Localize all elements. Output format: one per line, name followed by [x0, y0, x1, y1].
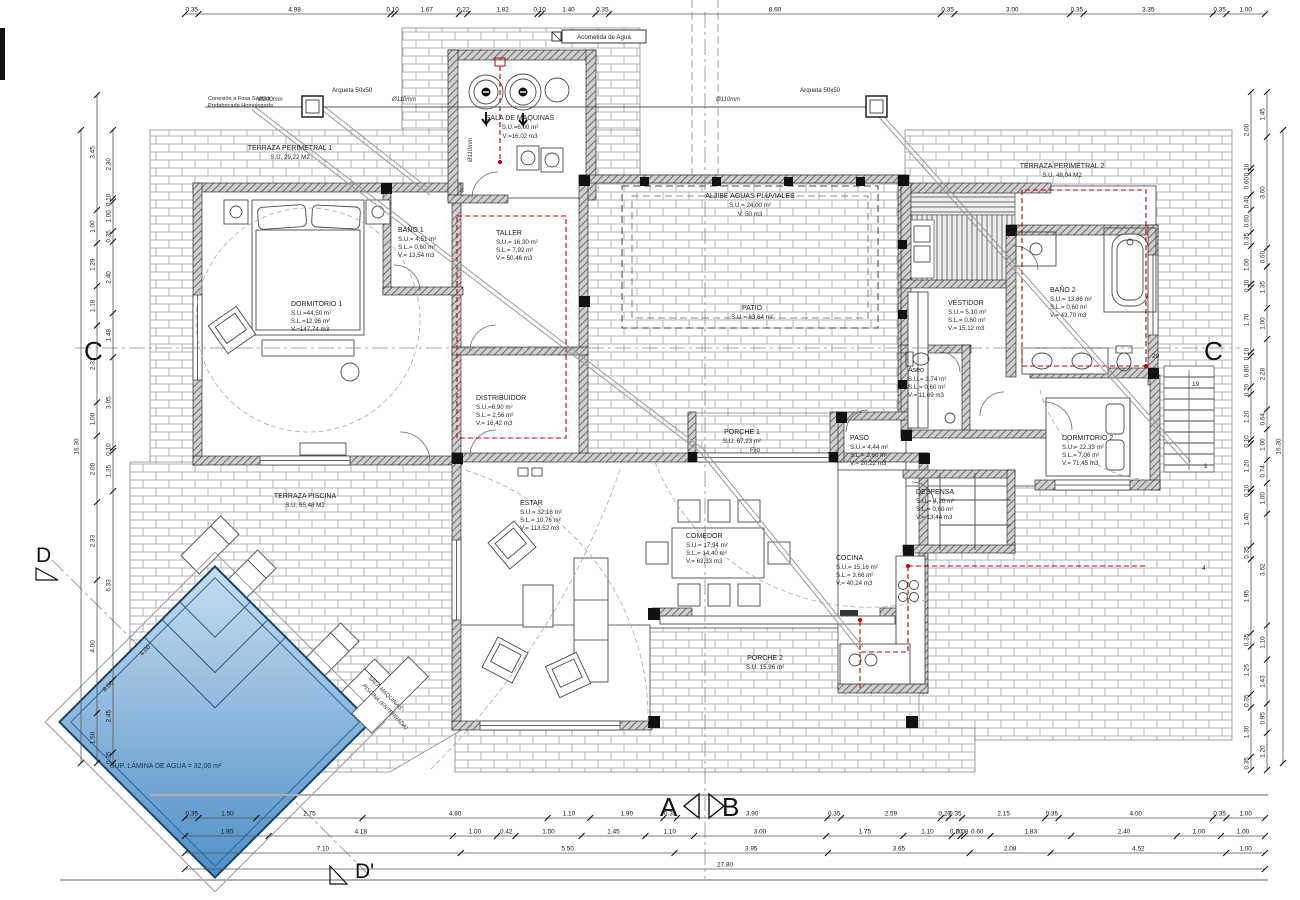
- svg-text:4.18: 4.18: [355, 829, 368, 836]
- svg-text:DORMITORIO 1: DORMITORIO 1: [291, 301, 342, 308]
- svg-text:S.U.= 16,30 m²: S.U.= 16,30 m²: [496, 239, 538, 246]
- svg-text:1.70: 1.70: [1244, 313, 1251, 326]
- svg-text:0.08: 0.08: [956, 829, 969, 836]
- arqueta-left-label: Arqueta 50x50: [332, 87, 373, 94]
- svg-text:S.U. 15,96 m²: S.U. 15,96 m²: [746, 664, 784, 671]
- svg-text:S.U.= 4,44 m²: S.U.= 4,44 m²: [850, 444, 888, 451]
- svg-text:COCINA: COCINA: [836, 555, 864, 562]
- svg-text:1.00: 1.00: [1260, 492, 1267, 505]
- section-d-prime: D': [355, 860, 374, 883]
- svg-text:1.90: 1.90: [621, 811, 634, 818]
- stair-number: 1: [1204, 463, 1208, 470]
- svg-text:S.U. 48,04 M2: S.U. 48,04 M2: [1042, 172, 1082, 179]
- svg-text:S.U.=6,00 m²: S.U.=6,00 m²: [502, 124, 539, 131]
- svg-text:S.U.= 63,64 m²: S.U.= 63,64 m²: [731, 314, 773, 321]
- dim-chain-right-inner: 2.000.100.600.400.600.351.000.101.700.10…: [1244, 89, 1255, 773]
- svg-text:V.=147,74 m3: V.=147,74 m3: [291, 326, 330, 333]
- svg-text:3.45: 3.45: [90, 146, 97, 159]
- svg-text:0.22: 0.22: [457, 7, 470, 14]
- arqueta-right-label: Arqueta 50x50: [800, 87, 841, 94]
- fijo-label: Fijo: [750, 447, 761, 454]
- svg-text:S.L.= 0,60 m²: S.L.= 0,60 m²: [398, 244, 435, 251]
- svg-text:BAÑO 2: BAÑO 2: [1050, 285, 1076, 294]
- dim-chain-right-outer: 16.30: [1276, 127, 1287, 766]
- svg-text:2.40: 2.40: [1118, 829, 1131, 836]
- svg-text:PORCHE 1: PORCHE 1: [724, 429, 760, 436]
- svg-text:0.74: 0.74: [1260, 465, 1267, 478]
- svg-text:0.10: 0.10: [1244, 279, 1251, 292]
- dim-chain-left-outer: 16.30: [74, 127, 85, 766]
- arqueta-right: [866, 96, 887, 117]
- svg-text:S.U.= 24,00 m²: S.U.= 24,00 m²: [729, 202, 771, 209]
- dim-chain-bottom-total: 27.80: [182, 862, 1268, 873]
- svg-text:0.35: 0.35: [949, 811, 962, 818]
- svg-text:1.10: 1.10: [1260, 636, 1267, 649]
- svg-text:1.30: 1.30: [1244, 725, 1251, 738]
- svg-text:PORCHE 2: PORCHE 2: [747, 655, 783, 662]
- svg-text:DESPENSA: DESPENSA: [916, 489, 954, 496]
- svg-text:0.10: 0.10: [386, 7, 399, 14]
- svg-text:1.82: 1.82: [496, 7, 509, 14]
- svg-text:S.U.=6,90 m²: S.U.=6,90 m²: [476, 404, 513, 411]
- svg-text:1.10: 1.10: [663, 829, 676, 836]
- svg-text:0.60: 0.60: [1244, 214, 1251, 227]
- svg-text:S.U.= 22,33 m²: S.U.= 22,33 m²: [1062, 444, 1104, 451]
- svg-text:1.00: 1.00: [1260, 438, 1267, 451]
- svg-text:PATIO: PATIO: [742, 305, 763, 312]
- svg-text:S.U. 65,48 M2: S.U. 65,48 M2: [285, 502, 325, 509]
- svg-text:V:=16,02 m3: V:=16,02 m3: [502, 133, 538, 140]
- floor-plan: SALA DE MAQUINASS.U.=6,00 m²V:=16,02 m3 …: [0, 0, 1300, 900]
- acometida-label: Acometida de Agua: [577, 34, 631, 41]
- svg-text:1.25: 1.25: [1244, 664, 1251, 677]
- svg-text:S.L.= 2,56 m²: S.L.= 2,56 m²: [476, 412, 513, 419]
- svg-text:4.00: 4.00: [1130, 811, 1143, 818]
- svg-text:2.00: 2.00: [1244, 123, 1251, 136]
- svg-text:2.33: 2.33: [90, 534, 97, 547]
- svg-text:0.95: 0.95: [1260, 712, 1267, 725]
- dim-chain-bottom-2: 1.904.181.000.421.501.451.103.001.751.10…: [182, 829, 1268, 840]
- section-b: B: [722, 792, 739, 822]
- svg-text:16.30: 16.30: [1276, 438, 1283, 454]
- svg-text:1.50: 1.50: [542, 829, 555, 836]
- sauna: [910, 186, 1015, 282]
- svg-text:V.= 63,33 m3: V.= 63,33 m3: [686, 558, 723, 565]
- svg-text:0.10: 0.10: [1244, 435, 1251, 448]
- svg-text:4.80: 4.80: [449, 811, 462, 818]
- svg-text:V.= 15,12 m3: V.= 15,12 m3: [948, 325, 985, 332]
- svg-text:ALJIBE AGUAS PLUVIALES: ALJIBE AGUAS PLUVIALES: [705, 193, 795, 200]
- arqueta-left: [302, 96, 323, 117]
- svg-text:1.83: 1.83: [1025, 829, 1038, 836]
- svg-text:4.52: 4.52: [1132, 846, 1145, 853]
- stair-number: 20: [1152, 353, 1160, 360]
- svg-text:1.00: 1.00: [90, 220, 97, 233]
- svg-text:0.35: 0.35: [1244, 233, 1251, 246]
- svg-text:S.L.= 3,66 m²: S.L.= 3,66 m²: [836, 572, 873, 579]
- dim-chain-right-mid: 1.453.600.601.351.002.280.641.000.741.00…: [1260, 89, 1271, 773]
- svg-text:V.= 11,69 m3: V.= 11,69 m3: [908, 392, 945, 399]
- svg-text:1.00: 1.00: [1193, 829, 1206, 836]
- svg-text:2.40: 2.40: [106, 271, 113, 284]
- svg-text:S.L.= 0,60 m²: S.L.= 0,60 m²: [948, 317, 985, 324]
- svg-text:1.00: 1.00: [90, 412, 97, 425]
- svg-text:TERRAZA PERIMETRAL 1: TERRAZA PERIMETRAL 1: [248, 145, 333, 152]
- svg-text:1.10: 1.10: [921, 829, 934, 836]
- svg-text:DORMITORIO 2: DORMITORIO 2: [1062, 435, 1113, 442]
- svg-text:7.10: 7.10: [317, 846, 330, 853]
- svg-text:3.00: 3.00: [754, 829, 767, 836]
- svg-text:S.L.= 3,60 m²: S.L.= 3,60 m²: [850, 452, 887, 459]
- svg-text:0.80: 0.80: [1244, 365, 1251, 378]
- svg-text:V.= 71,45 m3: V.= 71,45 m3: [1062, 460, 1099, 467]
- svg-text:1.29: 1.29: [90, 258, 97, 271]
- svg-text:6.33: 6.33: [106, 579, 113, 592]
- svg-text:1.00: 1.00: [469, 829, 482, 836]
- svg-text:TERRAZA PISCINA: TERRAZA PISCINA: [274, 493, 337, 500]
- svg-text:0.10: 0.10: [533, 7, 546, 14]
- section-d: D: [36, 544, 51, 567]
- svg-text:V.= 16,42 m3: V.= 16,42 m3: [476, 420, 513, 427]
- svg-text:S.U.= 13,86 m²: S.U.= 13,86 m²: [1050, 296, 1092, 303]
- svg-text:0.10: 0.10: [1244, 163, 1251, 176]
- svg-text:Ø110mm: Ø110mm: [468, 138, 474, 163]
- svg-text:3.90: 3.90: [746, 811, 759, 818]
- svg-text:3.95: 3.95: [745, 846, 758, 853]
- svg-text:2.45: 2.45: [106, 709, 113, 722]
- svg-text:Prefabricada Homologada: Prefabricada Homologada: [208, 103, 274, 109]
- svg-text:V: 50 m3: V: 50 m3: [738, 211, 763, 218]
- svg-text:V.= 50,46 m3: V.= 50,46 m3: [496, 255, 533, 262]
- svg-text:0.35: 0.35: [1213, 811, 1226, 818]
- svg-text:0.35: 0.35: [828, 811, 841, 818]
- svg-text:2.15: 2.15: [997, 811, 1010, 818]
- svg-text:0.35: 0.35: [1244, 633, 1251, 646]
- svg-text:0.35: 0.35: [1213, 7, 1226, 14]
- svg-text:S.L.= 0,60 m²: S.L.= 0,60 m²: [908, 384, 945, 391]
- svg-text:4.98: 4.98: [288, 7, 301, 14]
- svg-text:VESTIDOR: VESTIDOR: [948, 300, 984, 307]
- svg-text:V.= 13,54 m3: V.= 13,54 m3: [398, 252, 435, 259]
- svg-text:COMEDOR: COMEDOR: [686, 533, 723, 540]
- svg-text:0.35: 0.35: [106, 751, 113, 764]
- svg-text:4.00: 4.00: [90, 640, 97, 653]
- svg-text:1.18: 1.18: [90, 299, 97, 312]
- svg-text:V.= 43,70 m3: V.= 43,70 m3: [1050, 312, 1087, 319]
- svg-text:0.64: 0.64: [1260, 413, 1267, 426]
- svg-text:1.95: 1.95: [1244, 590, 1251, 603]
- dim-chain-top: 0.354.980.101.670.221.820.101.400.358.60…: [182, 7, 1268, 18]
- svg-text:0.35: 0.35: [106, 230, 113, 243]
- svg-text:0.35: 0.35: [1071, 7, 1084, 14]
- svg-text:S.U.= 4,51 m²: S.U.= 4,51 m²: [398, 236, 436, 243]
- stair-number: 19: [1192, 381, 1200, 388]
- svg-text:0.42: 0.42: [500, 829, 513, 836]
- svg-text:S.L.= 0,60 m²: S.L.= 0,60 m²: [916, 506, 953, 513]
- svg-text:3.62: 3.62: [1260, 563, 1267, 576]
- svg-text:S.U.= 15,16 m²: S.U.= 15,16 m²: [836, 564, 878, 571]
- svg-text:S.U.= 4,20 m²: S.U.= 4,20 m²: [916, 498, 954, 505]
- svg-text:0.20: 0.20: [1244, 384, 1251, 397]
- svg-text:1.90: 1.90: [221, 829, 234, 836]
- svg-text:V.= 13,44 m3: V.= 13,44 m3: [916, 514, 953, 521]
- svg-text:1.40: 1.40: [1244, 513, 1251, 526]
- stairs: [1164, 366, 1214, 472]
- svg-text:5.50: 5.50: [561, 846, 574, 853]
- svg-text:1.20: 1.20: [1244, 459, 1251, 472]
- svg-text:0.35: 0.35: [186, 7, 199, 14]
- svg-text:2.75: 2.75: [303, 811, 316, 818]
- svg-text:Ø110mm: Ø110mm: [715, 97, 740, 103]
- svg-text:1.75: 1.75: [858, 829, 871, 836]
- svg-text:2.59: 2.59: [885, 811, 898, 818]
- svg-text:2.31: 2.31: [90, 357, 97, 370]
- svg-text:1.00: 1.00: [1260, 317, 1267, 330]
- svg-text:0.35: 0.35: [1244, 757, 1251, 770]
- svg-text:3.60: 3.60: [1260, 186, 1267, 199]
- svg-text:S.L.= 0,60 m²: S.L.= 0,60 m²: [1050, 304, 1087, 311]
- svg-text:S.L.= 14,40 m²: S.L.= 14,40 m²: [686, 550, 727, 557]
- svg-text:0.60: 0.60: [1260, 251, 1267, 264]
- svg-text:ESTAR: ESTAR: [520, 500, 543, 507]
- svg-text:S.U.= 5,10 m²: S.U.= 5,10 m²: [948, 309, 986, 316]
- svg-text:0.10: 0.10: [106, 443, 113, 456]
- svg-text:1.00: 1.00: [1237, 829, 1250, 836]
- svg-text:0.35: 0.35: [186, 811, 199, 818]
- svg-text:1.10: 1.10: [563, 811, 576, 818]
- svg-text:S.L.= 7,06 m²: S.L.= 7,06 m²: [1062, 452, 1099, 459]
- svg-text:1.00: 1.00: [1239, 811, 1252, 818]
- svg-text:0.60: 0.60: [971, 829, 984, 836]
- svg-text:1.45: 1.45: [607, 829, 620, 836]
- svg-text:0.35: 0.35: [596, 7, 609, 14]
- svg-text:SALA DE MAQUINAS: SALA DE MAQUINAS: [486, 115, 555, 122]
- svg-text:0.35: 0.35: [941, 7, 954, 14]
- svg-text:S.L.=12,96 m²: S.L.=12,96 m²: [291, 318, 330, 325]
- svg-text:1.00: 1.00: [1239, 7, 1252, 14]
- svg-text:8.60: 8.60: [769, 7, 782, 14]
- svg-text:Ø110mm: Ø110mm: [391, 97, 416, 103]
- svg-text:BAÑO 1: BAÑO 1: [398, 225, 424, 234]
- svg-text:S.U.= 3,74 m²: S.U.= 3,74 m²: [908, 376, 946, 383]
- wardrobe: [908, 292, 928, 428]
- svg-text:0.35: 0.35: [664, 811, 677, 818]
- svg-text:0.10: 0.10: [106, 193, 113, 206]
- svg-text:1.35: 1.35: [106, 464, 113, 477]
- svg-text:S.U.= 32,16 m²: S.U.= 32,16 m²: [520, 509, 562, 516]
- svg-text:16.30: 16.30: [74, 438, 81, 454]
- svg-text:V.= 113,52 m3: V.= 113,52 m3: [520, 525, 560, 532]
- svg-text:0.35: 0.35: [1046, 811, 1059, 818]
- svg-text:1.20: 1.20: [1244, 410, 1251, 423]
- section-c-right: C: [1204, 336, 1223, 366]
- svg-text:1.00: 1.00: [106, 210, 113, 223]
- svg-text:1.45: 1.45: [1260, 108, 1267, 121]
- svg-text:1.43: 1.43: [1260, 675, 1267, 688]
- svg-text:2.00: 2.00: [90, 462, 97, 475]
- svg-text:0.10: 0.10: [1244, 484, 1251, 497]
- stair-number: 4: [1202, 565, 1206, 572]
- svg-text:27.80: 27.80: [717, 862, 733, 869]
- svg-text:0.60: 0.60: [1244, 177, 1251, 190]
- svg-text:Aseo: Aseo: [908, 367, 924, 374]
- svg-text:S.U. 29,22 M2: S.U. 29,22 M2: [270, 154, 310, 161]
- svg-text:S.U.= 17,94 m²: S.U.= 17,94 m²: [686, 542, 728, 549]
- svg-text:1.48: 1.48: [106, 328, 113, 341]
- section-a: A: [660, 792, 678, 822]
- svg-text:3.05: 3.05: [106, 396, 113, 409]
- svg-text:0.40: 0.40: [1244, 195, 1251, 208]
- svg-text:1.00: 1.00: [1239, 846, 1252, 853]
- svg-text:V.= 20,22 m3: V.= 20,22 m3: [850, 460, 887, 467]
- svg-text:S.L.= 10,76 m²: S.L.= 10,76 m²: [520, 517, 561, 524]
- svg-text:S.U. 67,23 m²: S.U. 67,23 m²: [723, 438, 761, 445]
- floor-plan-svg: SALA DE MAQUINASS.U.=6,00 m²V:=16,02 m3 …: [0, 0, 1300, 900]
- svg-text:2.30: 2.30: [106, 158, 113, 171]
- svg-text:1.40: 1.40: [562, 7, 575, 14]
- svg-text:1.50: 1.50: [90, 731, 97, 744]
- svg-text:DISTRIBUIDOR: DISTRIBUIDOR: [476, 395, 526, 402]
- svg-text:0.35: 0.35: [1244, 694, 1251, 707]
- svg-text:TERRAZA PERIMETRAL 2: TERRAZA PERIMETRAL 2: [1020, 163, 1105, 170]
- svg-text:3.00: 3.00: [1006, 7, 1019, 14]
- svg-text:3.65: 3.65: [893, 846, 906, 853]
- svg-text:1.20: 1.20: [1260, 745, 1267, 758]
- svg-text:S.L.= 7,92 m²: S.L.= 7,92 m²: [496, 247, 533, 254]
- svg-text:3.35: 3.35: [1142, 7, 1155, 14]
- svg-text:0.35: 0.35: [1244, 546, 1251, 559]
- dim-chain-left-mid: 3.451.001.291.182.311.002.002.334.001.50: [90, 92, 101, 766]
- svg-text:Ø200mm: Ø200mm: [257, 97, 283, 103]
- pool-water-label: SUP. LÁMINA DE AGUA = 32,00 m²: [110, 761, 222, 770]
- svg-text:1.35: 1.35: [1260, 281, 1267, 294]
- svg-text:1.00: 1.00: [1244, 258, 1251, 271]
- svg-text:2.08: 2.08: [1004, 846, 1017, 853]
- svg-text:TALLER: TALLER: [496, 230, 522, 237]
- svg-text:V.= 40,24 m3: V.= 40,24 m3: [836, 580, 873, 587]
- svg-text:1.50: 1.50: [221, 811, 234, 818]
- svg-text:2.28: 2.28: [1260, 368, 1267, 381]
- svg-text:PASO: PASO: [850, 435, 869, 442]
- svg-text:1.67: 1.67: [421, 7, 434, 14]
- svg-text:0.10: 0.10: [1244, 347, 1251, 360]
- svg-text:S.U.=44,50 m²: S.U.=44,50 m²: [291, 310, 331, 317]
